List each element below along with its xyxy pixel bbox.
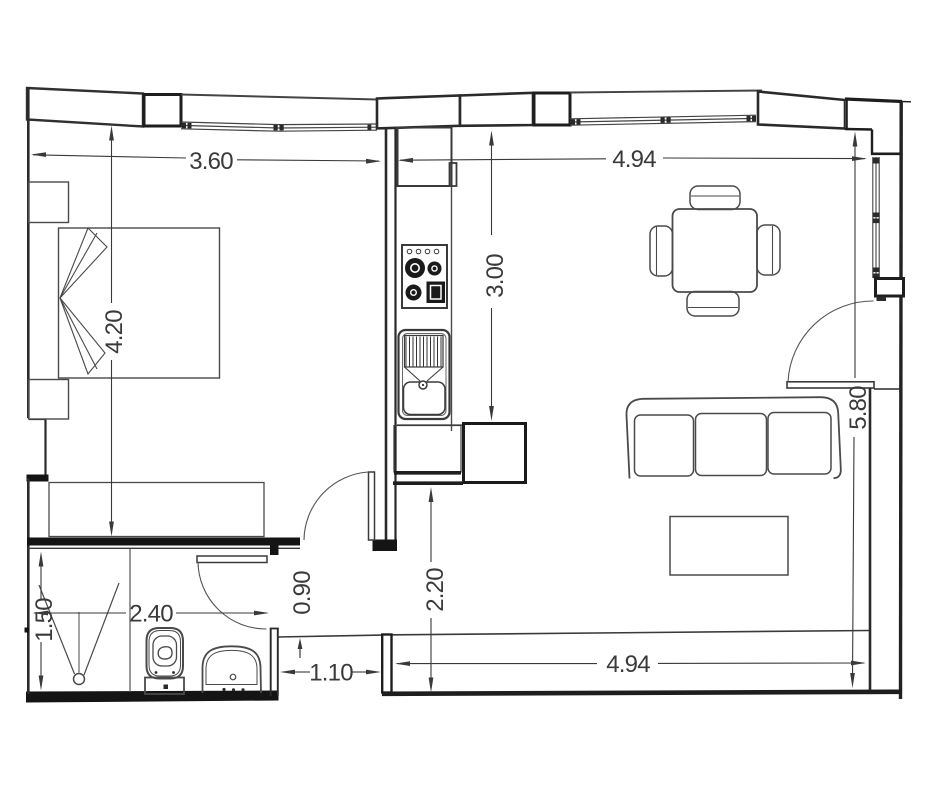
svg-text:4.94: 4.94 xyxy=(606,651,650,678)
svg-text:3.60: 3.60 xyxy=(189,148,233,175)
svg-text:4.94: 4.94 xyxy=(612,146,656,173)
svg-text:1.10: 1.10 xyxy=(309,660,353,687)
svg-text:2.40: 2.40 xyxy=(129,601,173,628)
svg-text:5.80: 5.80 xyxy=(845,386,872,430)
svg-text:2.20: 2.20 xyxy=(422,568,449,612)
svg-text:0.90: 0.90 xyxy=(289,571,316,615)
svg-text:1.50: 1.50 xyxy=(31,598,58,642)
svg-text:3.00: 3.00 xyxy=(482,254,509,298)
svg-text:4.20: 4.20 xyxy=(101,310,128,354)
